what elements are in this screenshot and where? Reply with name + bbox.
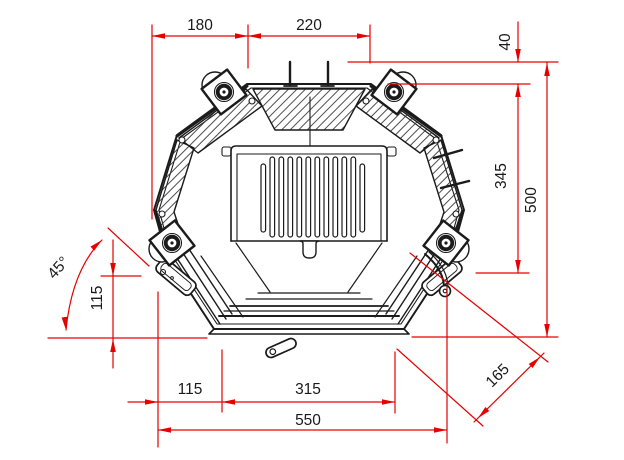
dim-label-115-vertical: 115 (89, 286, 106, 311)
dim-label-180: 180 (187, 17, 213, 34)
dim-label-500: 500 (523, 187, 540, 213)
dim-label-315: 315 (295, 381, 321, 398)
dim-label-40: 40 (497, 33, 514, 51)
technical-drawing-stove-top-view: 180 220 40 345 500 45° 115 115 315 550 1… (0, 0, 624, 460)
dim-label-220: 220 (296, 17, 322, 34)
dim-label-550: 550 (295, 412, 321, 429)
dim-label-345: 345 (493, 163, 510, 189)
dim-label-115-bottom: 115 (178, 381, 203, 398)
